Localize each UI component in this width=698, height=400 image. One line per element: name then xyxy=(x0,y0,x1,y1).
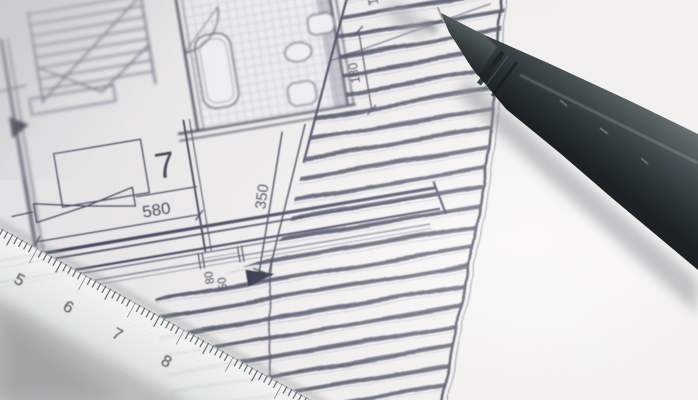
photo-canvas: 580 350 80 50 xyxy=(0,0,698,400)
corner-shade xyxy=(0,0,200,180)
photo-floorplan-pen-ruler: 580 350 80 50 xyxy=(0,0,698,400)
